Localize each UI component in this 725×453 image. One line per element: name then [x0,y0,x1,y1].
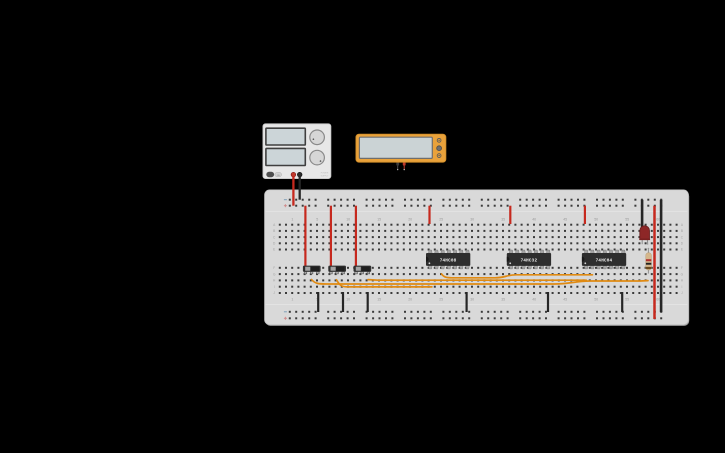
svg-text:30: 30 [470,218,474,222]
svg-text:POWER: POWER [321,173,329,175]
svg-text:60: 60 [656,297,660,301]
svg-text:E: E [273,248,275,252]
svg-text:55: 55 [625,297,629,301]
svg-text:40: 40 [532,218,536,222]
svg-text:74HC04: 74HC04 [596,258,613,263]
svg-text:74HC08: 74HC08 [440,258,457,263]
svg-text:15: 15 [377,297,381,301]
svg-text:50: 50 [594,297,598,301]
svg-text:50: 50 [594,218,598,222]
svg-text:40: 40 [532,297,536,301]
svg-text:25: 25 [439,218,443,222]
svg-text:35: 35 [501,218,505,222]
svg-text:1: 1 [291,218,293,222]
svg-text:10: 10 [346,297,350,301]
svg-text:I: I [681,285,682,289]
svg-text:20: 20 [408,297,412,301]
svg-text:B: B [681,229,683,233]
svg-text:B: B [273,229,275,233]
svg-text:45: 45 [563,218,567,222]
svg-text:20: 20 [408,218,412,222]
svg-text:15: 15 [377,218,381,222]
svg-text:1: 1 [291,297,293,301]
svg-text:60: 60 [656,218,660,222]
svg-text:F: F [273,266,275,270]
svg-text:45: 45 [563,297,567,301]
svg-text:55: 55 [625,218,629,222]
svg-text:5: 5 [316,218,318,222]
svg-text:10: 10 [346,218,350,222]
svg-text:25: 25 [439,297,443,301]
svg-text:30: 30 [470,297,474,301]
svg-text:74HC32: 74HC32 [521,258,538,263]
svg-text:35: 35 [501,297,505,301]
svg-text:SUPPLY: SUPPLY [321,175,329,177]
svg-text:F: F [681,266,683,270]
svg-text:E: E [681,248,683,252]
svg-text:I: I [274,285,275,289]
